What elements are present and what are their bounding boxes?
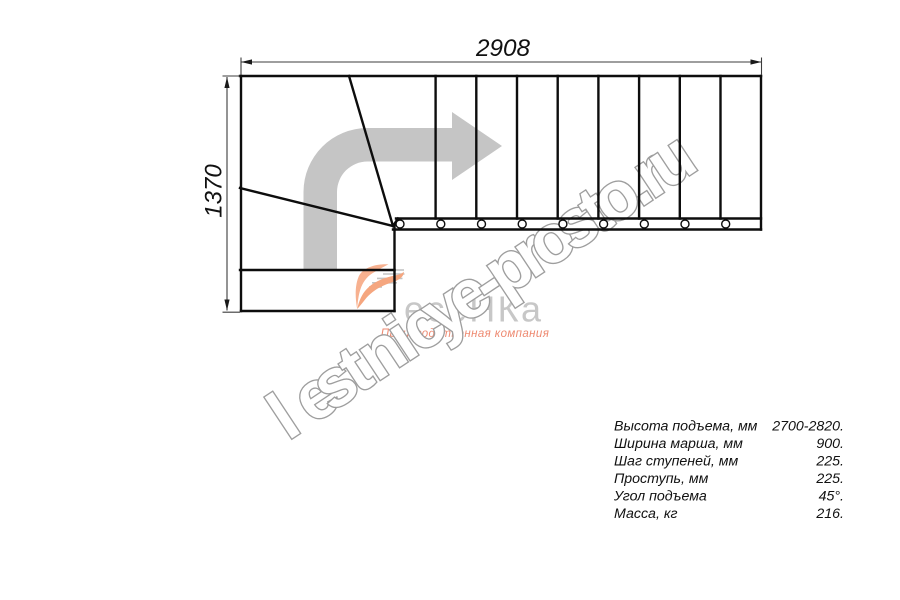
svg-text:Ширина марша, мм: Ширина марша, мм <box>614 436 743 452</box>
svg-text:1370: 1370 <box>201 164 228 218</box>
svg-text:Угол подъема: Угол подъема <box>613 489 707 505</box>
svg-text:Высота подъема, мм: Высота подъема, мм <box>614 419 758 435</box>
svg-text:225.: 225. <box>815 471 844 487</box>
svg-text:216.: 216. <box>815 506 844 522</box>
svg-text:45°.: 45°. <box>819 489 844 505</box>
svg-text:2908: 2908 <box>475 35 531 62</box>
svg-text:900.: 900. <box>816 436 844 452</box>
svg-text:225.: 225. <box>815 454 844 470</box>
svg-text:2700-2820.: 2700-2820. <box>771 419 844 435</box>
svg-text:Масса, кг: Масса, кг <box>614 506 678 522</box>
svg-text:Шаг ступеней, мм: Шаг ступеней, мм <box>614 454 738 470</box>
svg-text:Проступь, мм: Проступь, мм <box>614 471 709 487</box>
